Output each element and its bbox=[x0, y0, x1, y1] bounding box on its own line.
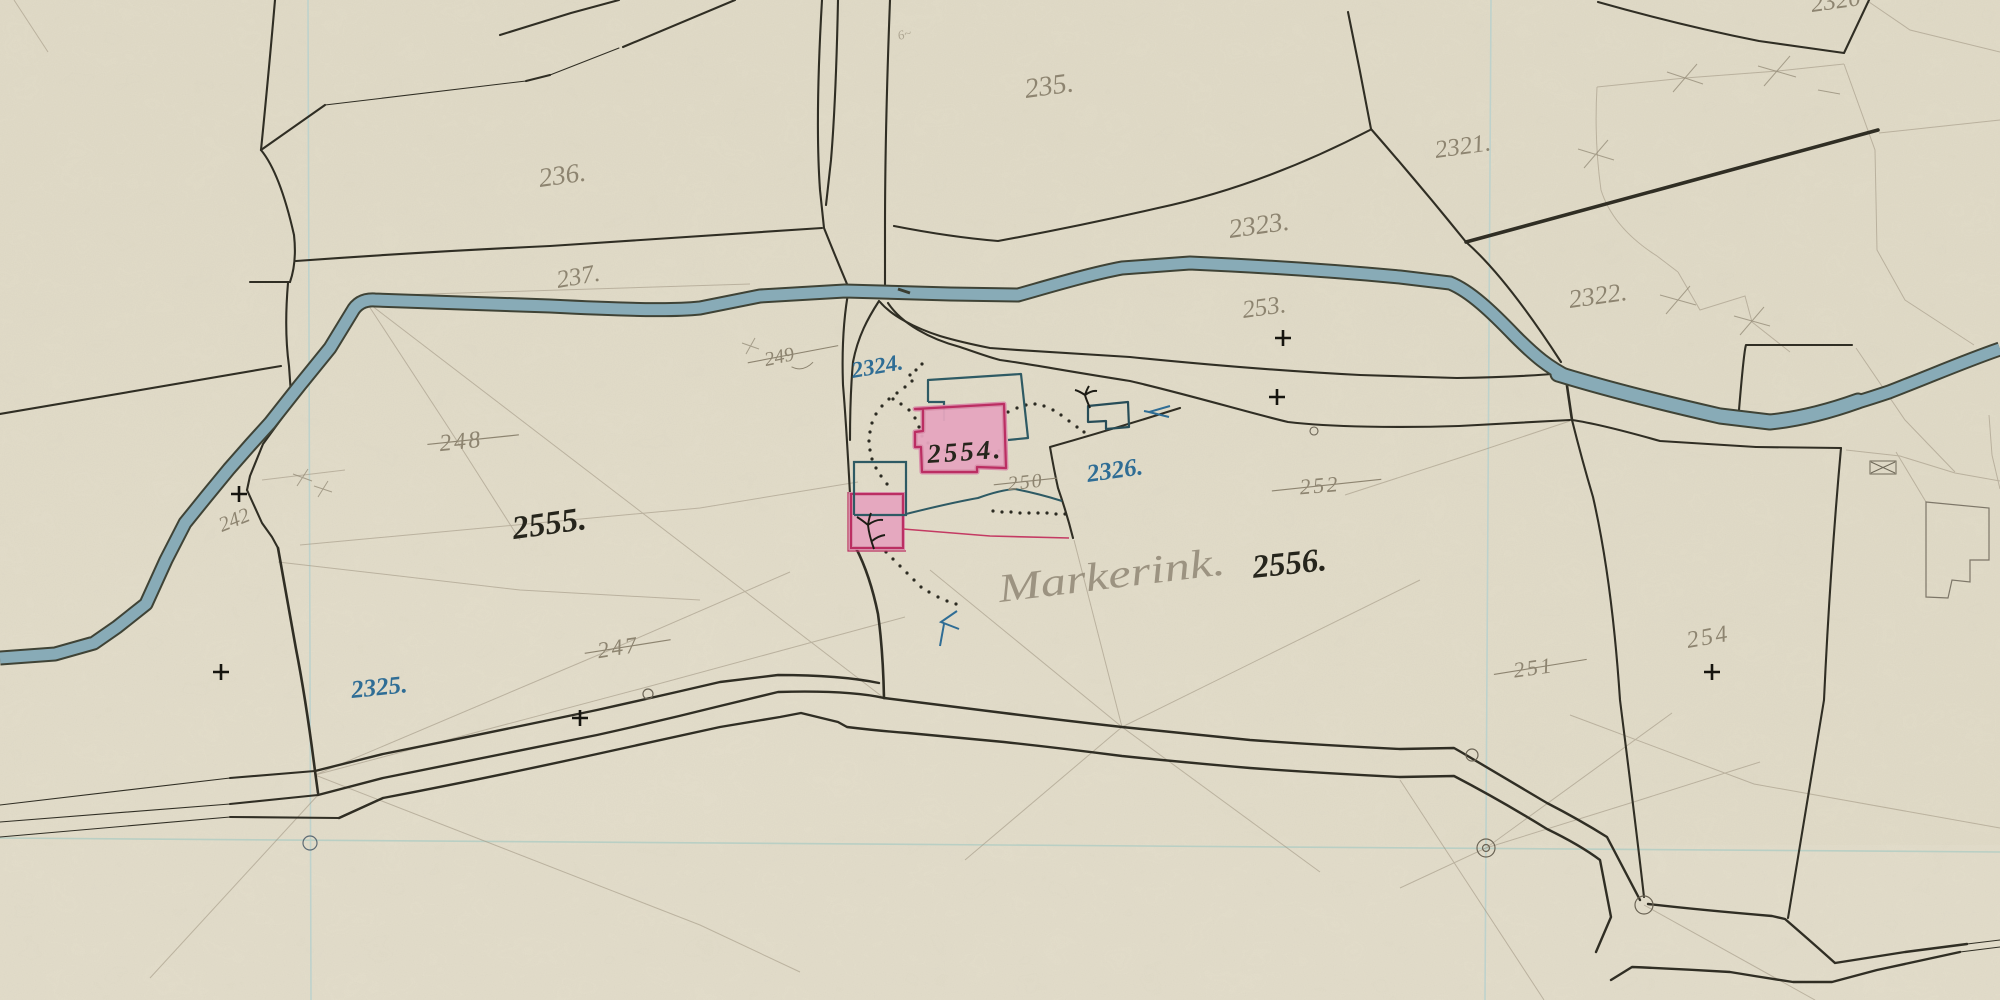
svg-text:2554.: 2554. bbox=[925, 434, 1004, 469]
svg-text:252: 252 bbox=[1299, 471, 1342, 499]
svg-text:248: 248 bbox=[438, 427, 484, 457]
